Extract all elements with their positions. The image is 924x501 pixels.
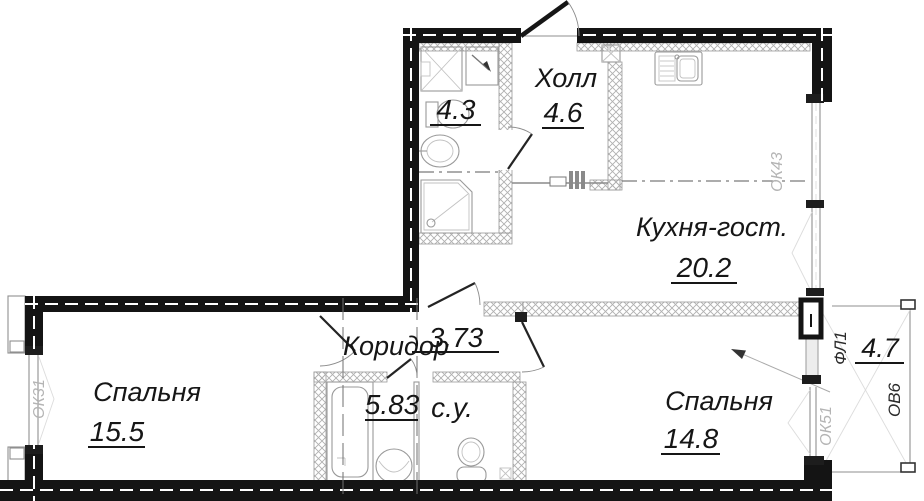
- area-corridor: 3.73: [429, 322, 484, 353]
- area-bedroom-left: 15.5: [90, 416, 145, 447]
- area-bedroom-right: 14.8: [664, 423, 719, 454]
- floor-plan: Холл 4.6 4.3 Кухня-гост. 20.2 Коридор 3.…: [0, 0, 924, 501]
- mark-OK43: ОК43: [769, 152, 786, 192]
- label-bedroom-right: Спальня: [665, 386, 773, 416]
- label-kitchen: Кухня-гост.: [636, 212, 788, 242]
- label-hall: Холл: [534, 63, 597, 93]
- area-kitchen: 20.2: [676, 252, 732, 283]
- mark-OK31: ОК31: [31, 379, 48, 419]
- area-hall: 4.6: [544, 97, 583, 128]
- label-bedroom-left: Спальня: [93, 377, 201, 407]
- mark-FL1: ФЛ1: [831, 331, 850, 365]
- mark-OK51: ОК51: [818, 406, 835, 446]
- area-balcony: 4.7: [861, 333, 900, 363]
- area-bathroom: 4.3: [437, 94, 476, 125]
- area-bathroom2: 5.83: [365, 389, 420, 420]
- floor-plan-drawing: Холл 4.6 4.3 Кухня-гост. 20.2 Коридор 3.…: [0, 0, 924, 501]
- label-wc: с.у.: [431, 392, 473, 423]
- mark-OV6: ОВ6: [885, 382, 904, 417]
